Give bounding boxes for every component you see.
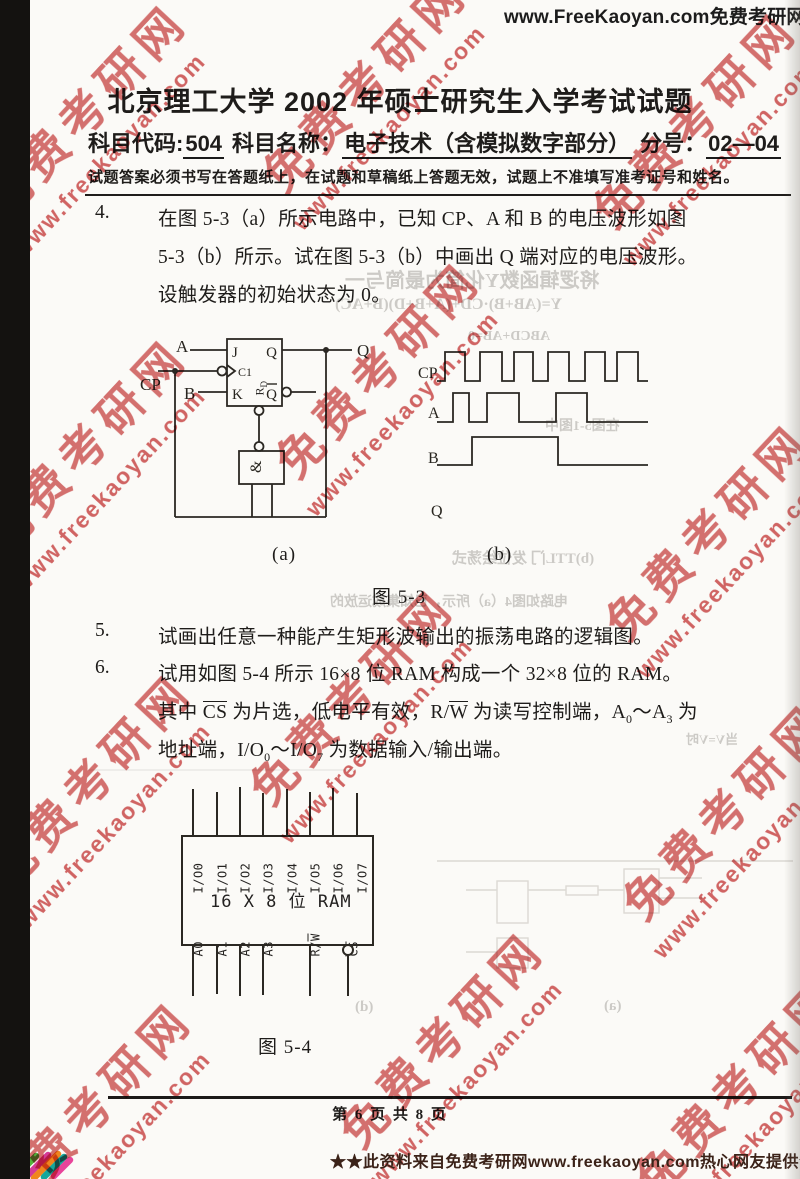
scan-edge-bar	[0, 0, 30, 1179]
ff-qbar-label: Q	[266, 387, 277, 403]
ff-k-label: K	[232, 387, 243, 403]
scanned-exam-page: 将逻辑函数Y化简为最简与一Y=(AB+B)·CD+(A+B+D)(B+AC)AB…	[0, 0, 800, 1179]
b-waveform	[437, 437, 648, 465]
fig53-waveforms	[437, 352, 648, 465]
line-art: A CP B J Q C1 K Q & Q CP A B Q	[0, 0, 800, 1179]
fig53-circuit	[158, 339, 352, 517]
ram-chip-title: 16 X 8 位 RAM	[210, 887, 352, 912]
waveform-q-label: Q	[431, 503, 443, 520]
waveform-b-label: B	[428, 450, 439, 467]
ff-reset-label: RD	[253, 370, 266, 396]
a-waveform	[437, 393, 648, 422]
waveform-cp-label: CP	[418, 365, 438, 382]
cp-waveform	[437, 352, 648, 381]
ff-q-label: Q	[266, 345, 277, 361]
scan-edge-shade	[784, 0, 800, 1179]
input-cp-label: CP	[140, 375, 161, 394]
input-a-label: A	[176, 337, 189, 356]
and-gate-symbol: &	[248, 460, 265, 473]
credit-line: ★★此资料来自免费考研网www.freekaoyan.com热心网友提供★★	[330, 1148, 800, 1172]
output-q-label: Q	[357, 341, 369, 360]
waveform-a-label: A	[428, 405, 440, 422]
ff-clock-label: C1	[238, 365, 252, 379]
fig53-waveform-labels: CP A B Q	[418, 365, 443, 520]
ff-j-label: J	[232, 345, 238, 361]
input-b-label: B	[184, 384, 195, 403]
